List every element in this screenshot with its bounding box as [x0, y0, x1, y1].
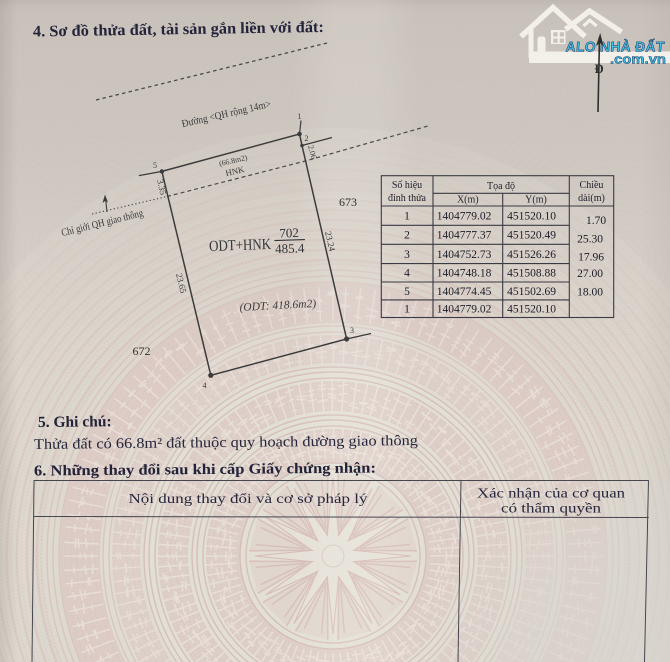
svg-text:Chỉ giới QH giao thông: Chỉ giới QH giao thông — [60, 208, 145, 239]
svg-text:2: 2 — [305, 134, 309, 143]
svg-text:Đ: Đ — [595, 62, 604, 76]
svg-text:Số hiệu: Số hiệu — [392, 180, 422, 191]
svg-text:6. Những thay đổi sau khi cấp: 6. Những thay đổi sau khi cấp Giấy chứng… — [34, 461, 376, 480]
svg-text:485.4: 485.4 — [275, 240, 305, 256]
svg-text:1404774.45: 1404774.45 — [437, 286, 492, 298]
svg-text:673: 673 — [339, 195, 357, 209]
svg-text:1: 1 — [298, 112, 302, 121]
svg-text:1404748.18: 1404748.18 — [437, 267, 492, 279]
svg-text:3: 3 — [350, 326, 354, 335]
svg-text:1: 1 — [404, 211, 410, 223]
svg-text:1404779.02: 1404779.02 — [437, 211, 492, 223]
svg-text:5: 5 — [153, 161, 157, 170]
svg-text:451526.26: 451526.26 — [507, 249, 556, 261]
svg-text:1404777.37: 1404777.37 — [437, 230, 492, 242]
svg-text:1404752.73: 1404752.73 — [437, 249, 492, 261]
svg-text:25.30: 25.30 — [577, 233, 603, 245]
svg-text:451520.10: 451520.10 — [507, 211, 556, 223]
svg-text:Xác nhận của cơ quan: Xác nhận của cơ quan — [477, 486, 625, 501]
svg-text:672: 672 — [133, 344, 151, 358]
svg-text:5: 5 — [404, 286, 410, 298]
svg-text:5. Ghi chú:: 5. Ghi chú: — [38, 413, 112, 431]
svg-text:(ODT: 418.6m2): (ODT: 418.6m2) — [239, 298, 316, 314]
svg-text:4. Sơ đồ thửa đất, tài sản gắn: 4. Sơ đồ thửa đất, tài sản gắn liền với … — [33, 19, 324, 41]
svg-text:.com.vn: .com.vn — [610, 53, 666, 67]
svg-text:dài(m): dài(m) — [578, 193, 605, 204]
svg-text:Tọa độ: Tọa độ — [487, 181, 515, 192]
svg-text:có thẩm quyền: có thẩm quyền — [501, 501, 601, 516]
svg-text:Y(m): Y(m) — [525, 195, 547, 206]
svg-text:1404779.02: 1404779.02 — [437, 303, 492, 315]
svg-text:17.96: 17.96 — [578, 252, 604, 264]
svg-text:451508.88: 451508.88 — [507, 267, 556, 279]
svg-text:18.00: 18.00 — [577, 286, 603, 298]
svg-text:451520.10: 451520.10 — [507, 303, 556, 315]
svg-text:2.06: 2.06 — [306, 144, 318, 160]
svg-text:702: 702 — [279, 225, 299, 241]
svg-text:451502.69: 451502.69 — [507, 286, 556, 298]
svg-text:4: 4 — [404, 267, 410, 279]
svg-text:3.35: 3.35 — [155, 178, 168, 196]
svg-text:451520.49: 451520.49 — [507, 230, 556, 242]
svg-text:Chiều: Chiều — [580, 180, 604, 191]
svg-text:4: 4 — [203, 381, 207, 390]
svg-text:ODT+HNK: ODT+HNK — [209, 236, 272, 255]
svg-text:đỉnh thửa: đỉnh thửa — [388, 193, 426, 204]
svg-text:Đường <QH rộng 14m>: Đường <QH rộng 14m> — [181, 99, 272, 130]
svg-text:Nội dung thay đổi và cơ sở phá: Nội dung thay đổi và cơ sở pháp lý — [129, 491, 368, 506]
svg-text:1.70: 1.70 — [586, 215, 606, 227]
svg-text:1: 1 — [404, 303, 410, 315]
svg-text:Thửa đất có 66.8m² đất thuộc q: Thửa đất có 66.8m² đất thuộc quy hoạch đ… — [34, 433, 419, 453]
svg-text:3: 3 — [404, 249, 410, 261]
svg-text:27.00: 27.00 — [577, 268, 603, 280]
svg-text:X(m): X(m) — [457, 195, 479, 206]
svg-text:2: 2 — [404, 230, 410, 242]
